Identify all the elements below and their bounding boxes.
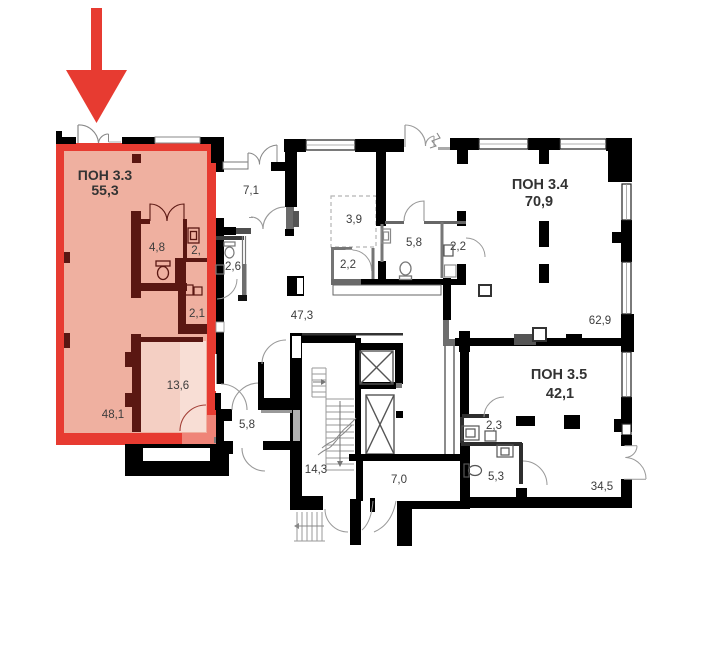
svg-text:ПОН 3.5: ПОН 3.5 (531, 367, 587, 383)
svg-text:13,6: 13,6 (167, 380, 189, 392)
svg-text:7,0: 7,0 (391, 474, 407, 486)
svg-text:2,2: 2,2 (450, 241, 466, 253)
svg-text:2,2: 2,2 (340, 259, 356, 271)
svg-text:62,9: 62,9 (589, 315, 611, 327)
svg-text:5,8: 5,8 (406, 237, 422, 249)
svg-text:42,1: 42,1 (546, 386, 574, 402)
svg-text:55,3: 55,3 (91, 182, 118, 198)
svg-text:5,3: 5,3 (488, 471, 504, 483)
svg-text:3,9: 3,9 (346, 214, 362, 226)
svg-text:47,3: 47,3 (291, 310, 313, 322)
svg-text:4,8: 4,8 (149, 242, 165, 254)
svg-text:2,1: 2,1 (189, 308, 205, 320)
svg-text:2,: 2, (191, 245, 201, 257)
svg-text:2,3: 2,3 (486, 420, 502, 432)
svg-text:14,3: 14,3 (305, 464, 327, 476)
svg-text:7,1: 7,1 (243, 185, 259, 197)
svg-text:5,8: 5,8 (239, 419, 255, 431)
svg-text:34,5: 34,5 (591, 481, 613, 493)
svg-text:48,1: 48,1 (102, 409, 124, 421)
svg-text:ПОН 3.3: ПОН 3.3 (78, 167, 133, 183)
svg-text:70,9: 70,9 (525, 194, 553, 210)
svg-text:2,6: 2,6 (225, 261, 241, 273)
svg-text:ПОН 3.4: ПОН 3.4 (512, 177, 568, 193)
